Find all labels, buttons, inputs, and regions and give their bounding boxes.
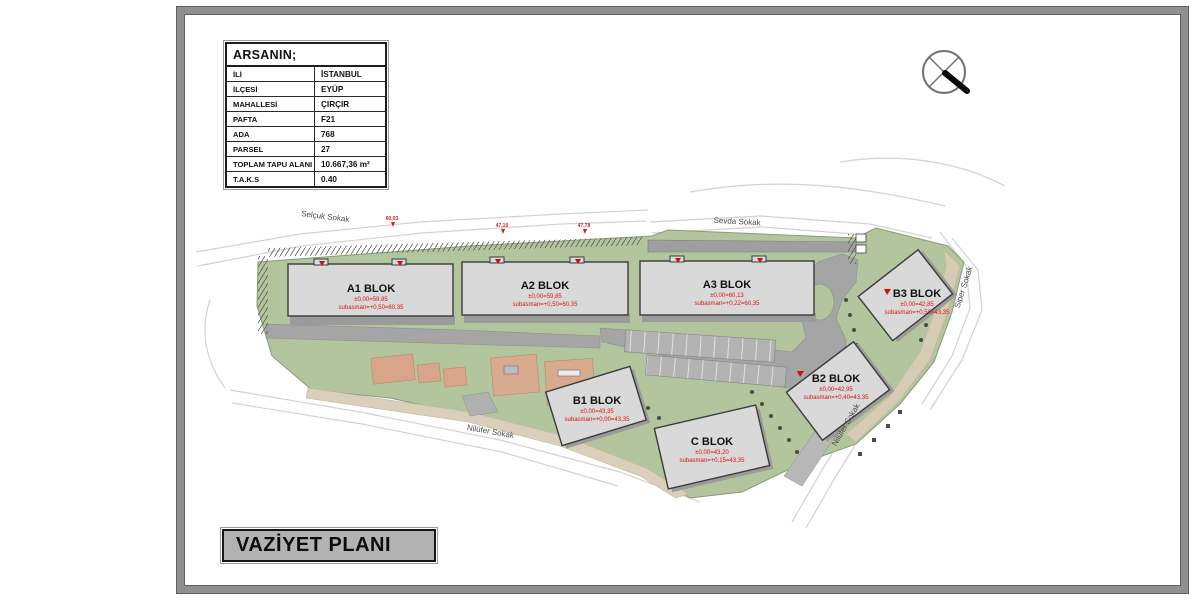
row-label: TOPLAM TAPU ALANI <box>227 157 315 171</box>
parcel-info-table: ARSANIN; İLİ İSTANBUL İLÇESİ EYÜP MAHALL… <box>225 42 387 188</box>
row-label: MAHALLESİ <box>227 97 315 111</box>
b2-subasman-label: subasman=+0,40=43,35 <box>804 395 870 401</box>
b1-elev-label: ±0,00=43,35 <box>580 409 614 415</box>
row-label: PARSEL <box>227 142 315 156</box>
row-value: 0.40 <box>315 172 385 186</box>
table-row: İLÇESİ EYÜP <box>227 82 385 97</box>
row-label: İLÇESİ <box>227 82 315 96</box>
b3-subasman-label: subasman=+0,50=43,35 <box>885 310 951 316</box>
a3-block-label: A3 BLOK <box>703 279 751 291</box>
b2-elev-label: ±0,00=42,95 <box>819 387 853 393</box>
drawing-title: VAZİYET PLANI <box>236 534 391 557</box>
drawing-title-box: VAZİYET PLANI <box>222 529 436 562</box>
b3-elev-label: ±0,00=42,85 <box>900 302 934 308</box>
north-arrow-icon <box>923 51 967 93</box>
spot-elev-1: 60,03 <box>386 216 399 222</box>
a3-elev-label: ±0,00=60,13 <box>710 293 744 299</box>
row-value: İSTANBUL <box>315 67 385 81</box>
table-row: PAFTA F21 <box>227 112 385 127</box>
table-row: PARSEL 27 <box>227 142 385 157</box>
parcel-info-header: ARSANIN; <box>227 44 385 67</box>
b1-subasman-label: subasman=+0,00=43,35 <box>565 417 631 423</box>
row-value: 10.667,36 m² <box>315 157 385 171</box>
c-elev-label: ±0,00=43,20 <box>695 450 729 456</box>
row-value: 768 <box>315 127 385 141</box>
table-row: T.A.K.S 0.40 <box>227 172 385 186</box>
row-value: EYÜP <box>315 82 385 96</box>
row-value: 27 <box>315 142 385 156</box>
a1-elev-label: ±0,00=59,85 <box>354 297 388 303</box>
spot-elev-2: 47,10 <box>496 223 509 229</box>
row-value: ÇIRÇIR <box>315 97 385 111</box>
b3-block-label: B3 BLOK <box>893 288 941 300</box>
sevda-sokak-label: Sevda Sokak <box>713 216 762 228</box>
table-row: ADA 768 <box>227 127 385 142</box>
row-value: F21 <box>315 112 385 126</box>
table-row: TOPLAM TAPU ALANI 10.667,36 m² <box>227 157 385 172</box>
table-row: MAHALLESİ ÇIRÇIR <box>227 97 385 112</box>
b1-block-label: B1 BLOK <box>573 395 621 407</box>
a2-subasman-label: subasman=+0,50=60,35 <box>513 302 579 308</box>
spot-elev-3: 47,78 <box>578 223 591 229</box>
drawing-page: A1 BLOK ±0,00=59,85 subasman=+0,50=60,35… <box>0 0 1200 600</box>
row-label: İLİ <box>227 67 315 81</box>
selcuk-sokak-label: Selçuk Sokak <box>301 209 351 224</box>
sevda-road-band <box>648 240 858 252</box>
c-block-label: C BLOK <box>691 436 733 448</box>
a3-subasman-label: subasman=+0,22=60,35 <box>695 301 761 307</box>
c-subasman-label: subasman=+0,15=43,35 <box>680 458 746 464</box>
a2-elev-label: ±0,00=59,85 <box>528 294 562 300</box>
table-row: İLİ İSTANBUL <box>227 67 385 82</box>
row-label: ADA <box>227 127 315 141</box>
a1-block-label: A1 BLOK <box>347 283 395 295</box>
a2-block-label: A2 BLOK <box>521 280 569 292</box>
row-label: PAFTA <box>227 112 315 126</box>
row-label: T.A.K.S <box>227 172 315 186</box>
b2-block-label: B2 BLOK <box>812 373 860 385</box>
a1-subasman-label: subasman=+0,50=60,35 <box>339 305 405 311</box>
site-plan-drawing: A1 BLOK ±0,00=59,85 subasman=+0,50=60,35… <box>0 0 1200 600</box>
